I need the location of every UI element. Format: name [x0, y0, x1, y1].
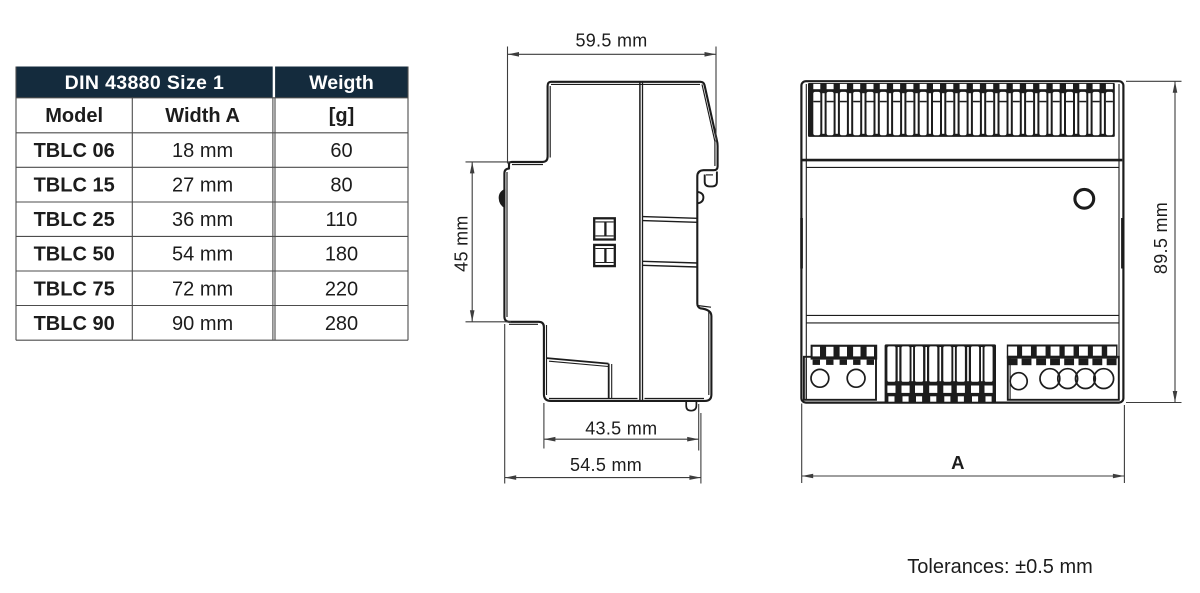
svg-text:110: 110 [326, 209, 358, 231]
svg-text:54.5 mm: 54.5 mm [570, 455, 642, 475]
svg-text:TBLC 75: TBLC 75 [34, 278, 115, 300]
svg-text:A: A [951, 452, 964, 473]
svg-text:36 mm: 36 mm [172, 209, 233, 231]
svg-text:280: 280 [325, 313, 358, 335]
svg-text:220: 220 [325, 278, 358, 300]
svg-text:TBLC 50: TBLC 50 [34, 244, 115, 266]
svg-text:TBLC 90: TBLC 90 [34, 313, 115, 335]
svg-text:Width A: Width A [165, 105, 240, 127]
svg-text:72 mm: 72 mm [172, 278, 233, 300]
svg-text:TBLC 25: TBLC 25 [34, 209, 115, 231]
svg-text:80: 80 [330, 175, 352, 197]
svg-text:180: 180 [325, 244, 358, 266]
svg-text:18 mm: 18 mm [172, 140, 233, 162]
svg-text:43.5 mm: 43.5 mm [585, 418, 657, 438]
svg-text:TBLC 15: TBLC 15 [34, 175, 115, 197]
svg-text:60: 60 [330, 140, 352, 162]
svg-text:59.5 mm: 59.5 mm [575, 31, 647, 51]
svg-text:DIN 43880 Size 1: DIN 43880 Size 1 [65, 72, 225, 94]
svg-text:TBLC 06: TBLC 06 [34, 140, 115, 162]
svg-text:[g]: [g] [329, 105, 355, 127]
svg-text:89.5 mm: 89.5 mm [1151, 202, 1171, 274]
svg-text:Model: Model [45, 105, 103, 127]
svg-text:45 mm: 45 mm [451, 215, 471, 272]
svg-text:Tolerances: ±0.5 mm: Tolerances: ±0.5 mm [907, 556, 1093, 578]
svg-text:90 mm: 90 mm [172, 313, 233, 335]
svg-text:54 mm: 54 mm [172, 244, 233, 266]
svg-text:Weigth: Weigth [309, 72, 374, 94]
svg-text:27 mm: 27 mm [172, 175, 233, 197]
